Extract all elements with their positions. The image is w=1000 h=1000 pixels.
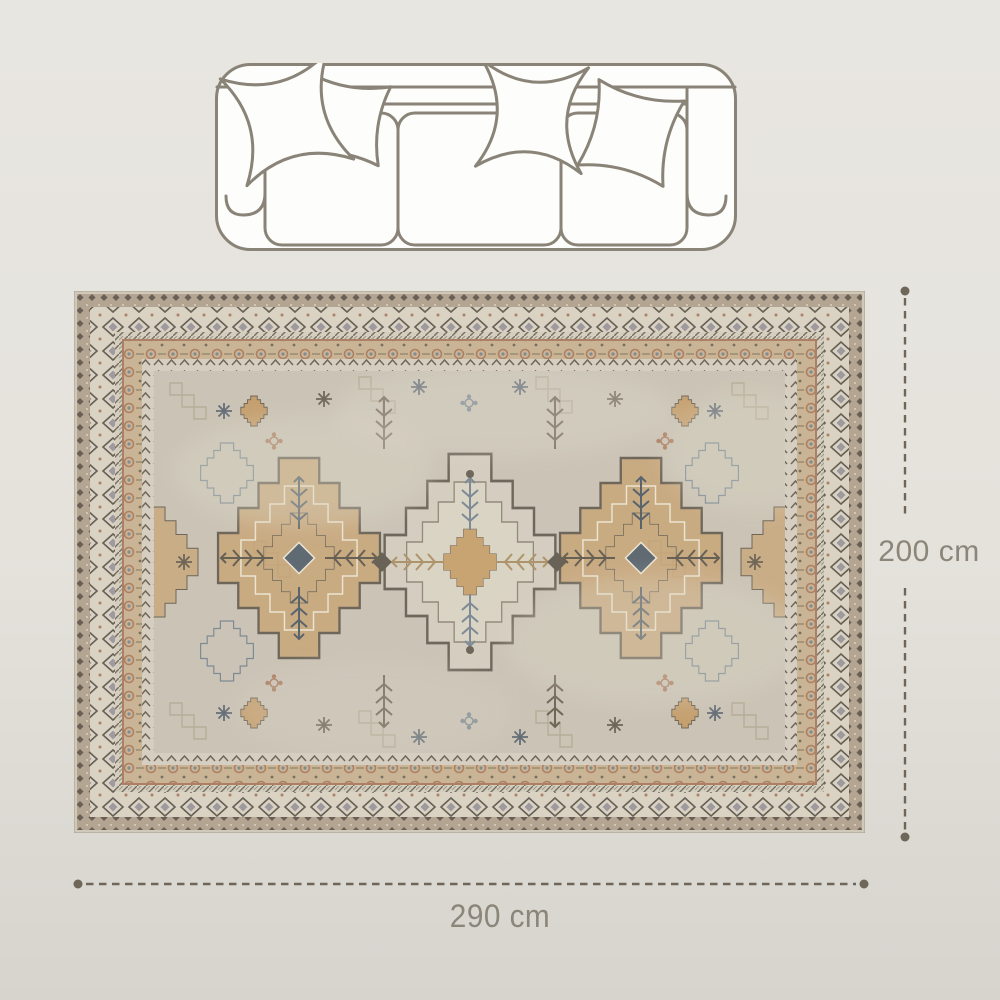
product-dimension-image: 200 cm 290 cm: [0, 0, 1000, 1000]
width-dimension-left-dot: [74, 880, 83, 889]
rug-photo: [74, 291, 865, 833]
height-dimension-label: 200 cm: [878, 534, 979, 570]
height-dimension-top-dot: [901, 287, 910, 296]
sofa-outline-group: [217, 63, 736, 249]
rug-wash: [74, 291, 865, 833]
width-dimension-label: 290 cm: [450, 898, 550, 934]
width-dimension-right-dot: [860, 880, 869, 889]
sofa-top-view-illustration: [215, 63, 737, 255]
height-dimension-bottom-dot: [901, 833, 910, 842]
